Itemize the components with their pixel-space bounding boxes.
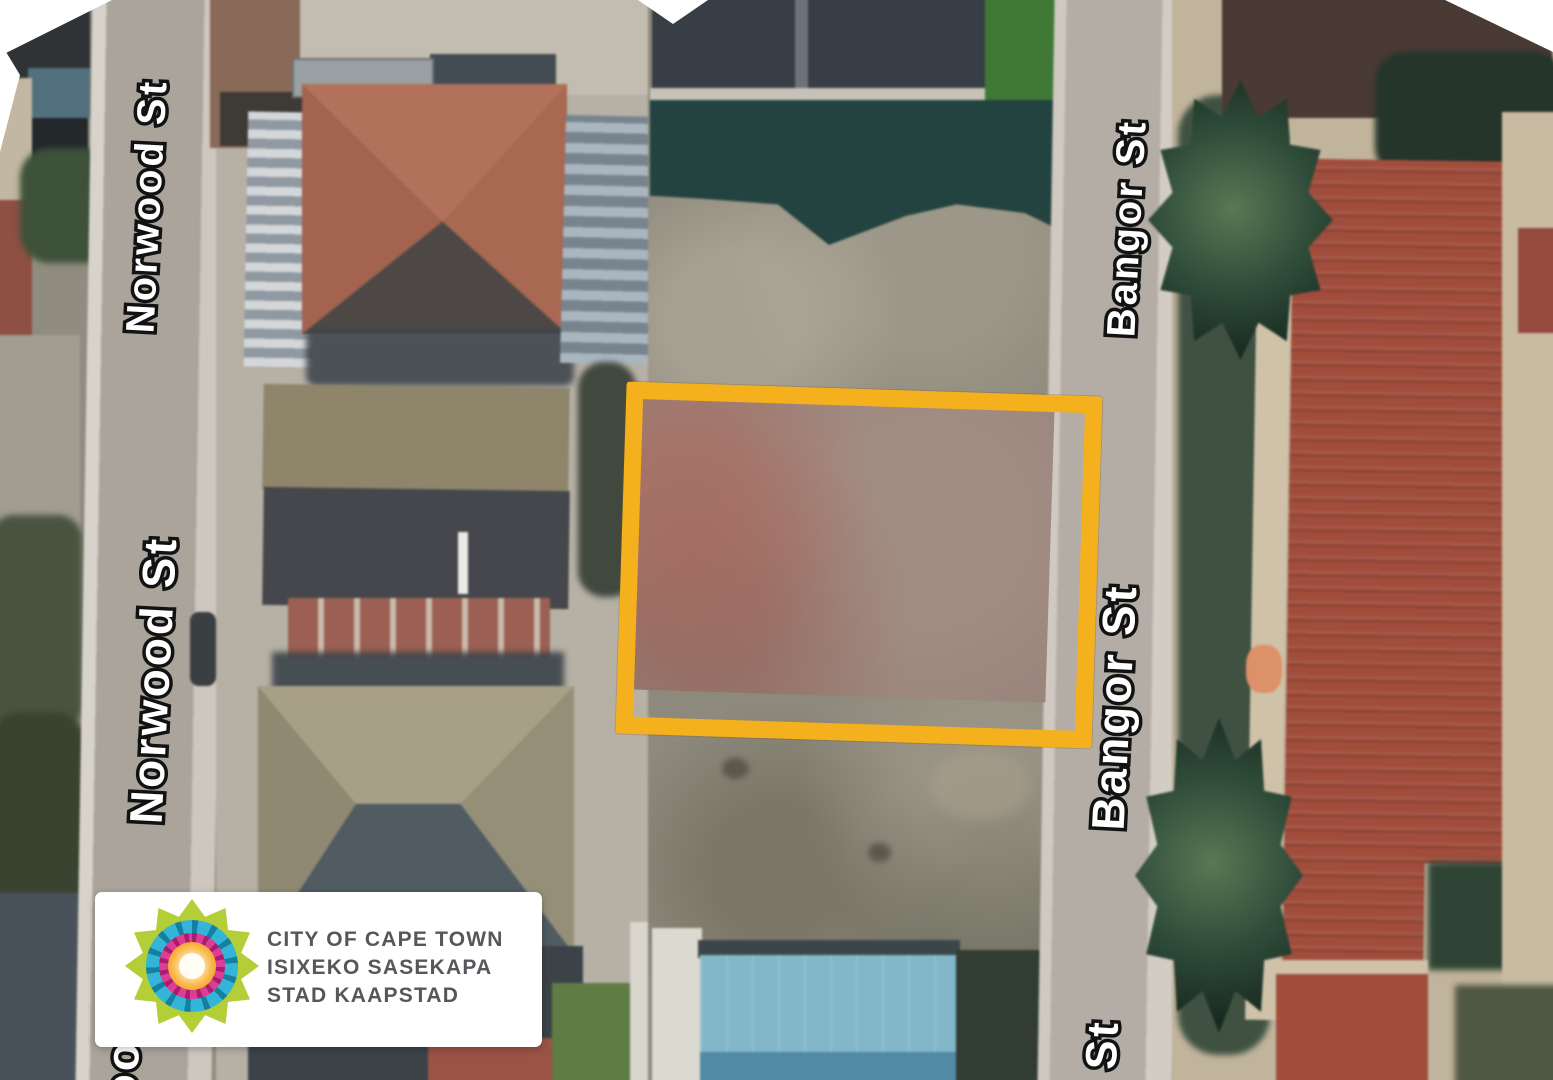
small-red-roof bbox=[1276, 972, 1428, 1080]
terrain-white-strip bbox=[652, 928, 702, 1080]
terrain-vegetation bbox=[0, 515, 82, 730]
house-shadow bbox=[306, 330, 574, 386]
gable-roof-north-slope bbox=[262, 384, 569, 494]
orange-feature bbox=[1246, 645, 1282, 693]
red-hip-roof-house bbox=[302, 84, 567, 334]
blue-roof-lower bbox=[700, 1052, 958, 1080]
dirt-spot bbox=[868, 843, 891, 862]
blue-roof bbox=[700, 955, 958, 1055]
tiled-awning bbox=[288, 598, 550, 658]
dirt-light-patch bbox=[930, 750, 1030, 820]
highlight-rectangle bbox=[616, 382, 1103, 749]
street-label-bangor-1: Bangor St bbox=[1101, 118, 1152, 338]
roof-vent bbox=[458, 532, 468, 594]
org-name-line-xh: ISIXEKO SASEKAPA bbox=[267, 954, 504, 982]
terrain-dark-corner bbox=[1455, 985, 1553, 1080]
city-of-cape-town-logo bbox=[125, 899, 259, 1033]
terrain-concrete bbox=[0, 335, 80, 530]
terrain-roof-gap bbox=[795, 0, 808, 88]
terrain-dark-roofs bbox=[652, 0, 992, 92]
car-on-road bbox=[190, 612, 216, 686]
terrain-trees bbox=[0, 712, 85, 917]
org-name-line-en: CITY OF CAPE TOWN bbox=[267, 926, 504, 954]
logo-card: CITY OF CAPE TOWN ISIXEKO SASEKAPA STAD … bbox=[95, 892, 542, 1047]
aerial-map: Norwood St Norwood St Norwood St Bangor … bbox=[0, 0, 1553, 1080]
org-name-block: CITY OF CAPE TOWN ISIXEKO SASEKAPA STAD … bbox=[267, 926, 504, 1010]
terrain-lawn bbox=[552, 983, 638, 1080]
street-label-bangor-2: Bangor St bbox=[1085, 583, 1144, 832]
roof-gap-line bbox=[1276, 960, 1428, 974]
gable-roof-south-slope bbox=[262, 487, 570, 609]
logo-white-center bbox=[179, 953, 205, 979]
org-name-line-af: STAD KAAPSTAD bbox=[267, 982, 504, 1010]
terrain-blue-shed bbox=[28, 68, 90, 118]
street-label-bangor-3-partial: Bangor St bbox=[1070, 1018, 1126, 1080]
terrain-red-patch bbox=[1518, 228, 1553, 333]
dirt-spot bbox=[722, 758, 749, 779]
